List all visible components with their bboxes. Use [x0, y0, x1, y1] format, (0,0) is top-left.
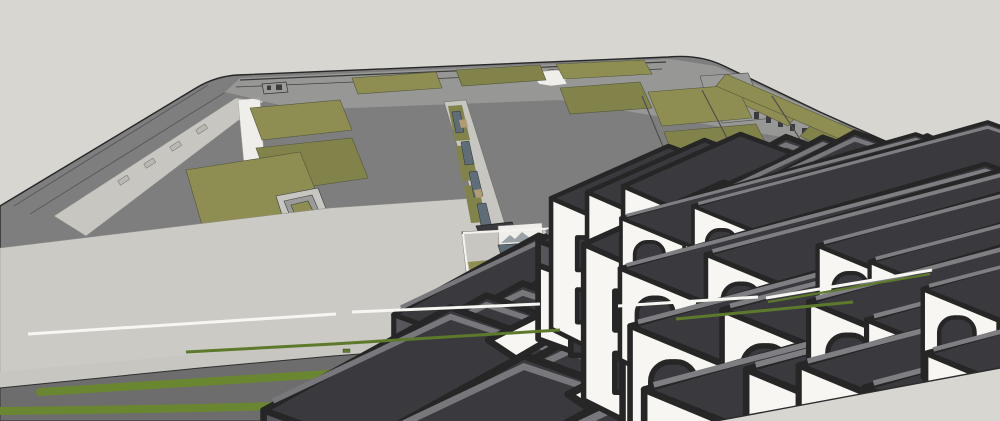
gate-structure-north: [262, 82, 288, 94]
model-viewport: aerial-3d-architectural-massing-render: [0, 0, 1000, 421]
site-render: aerial-3d-architectural-massing-render: [0, 0, 1000, 421]
